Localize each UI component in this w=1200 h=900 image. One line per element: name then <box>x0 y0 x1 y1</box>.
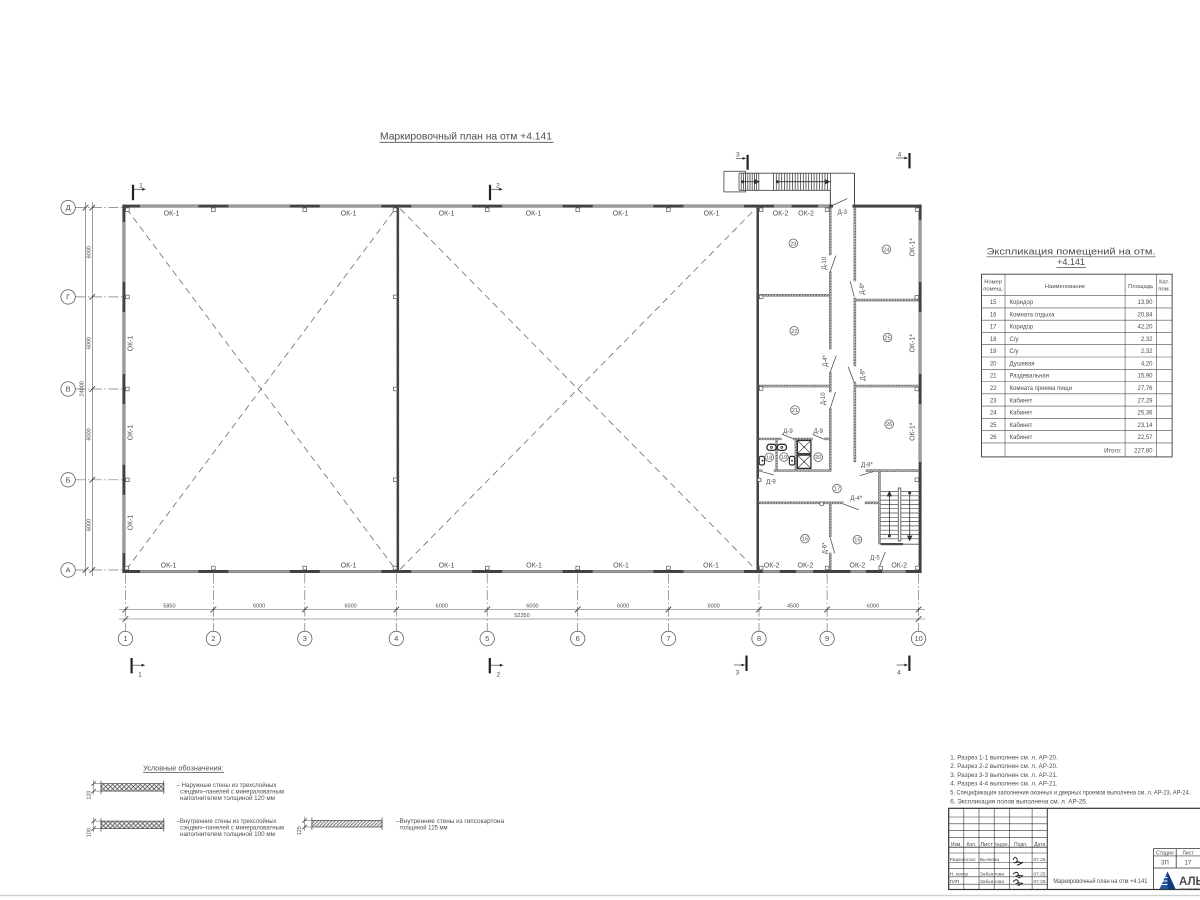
svg-text:2: 2 <box>496 183 500 190</box>
svg-text:С/у: С/у <box>1010 337 1019 343</box>
svg-text:ОК-1*: ОК-1* <box>909 334 916 353</box>
svg-text:Разработал: Разработал <box>950 857 976 863</box>
svg-text:15,90: 15,90 <box>1137 374 1153 380</box>
svg-text:19: 19 <box>990 349 997 355</box>
svg-text:ОК-1*: ОК-1* <box>909 422 916 441</box>
svg-text:42,20: 42,20 <box>1137 325 1153 331</box>
svg-text:24: 24 <box>883 247 889 253</box>
svg-text:23: 23 <box>990 398 997 404</box>
svg-text:6000: 6000 <box>86 519 92 531</box>
svg-text:–Внутренние стены из трехслойн: –Внутренние стены из трехслойных <box>177 818 277 825</box>
svg-text:Наименование: Наименование <box>1045 284 1085 290</box>
svg-text:ОК-1: ОК-1 <box>161 562 177 569</box>
svg-text:Бычкова: Бычкова <box>980 857 999 863</box>
svg-text:26: 26 <box>886 422 892 428</box>
svg-text:ОК-2: ОК-2 <box>850 562 866 569</box>
svg-text:ОК-2: ОК-2 <box>773 211 789 218</box>
svg-text:23: 23 <box>790 241 796 247</box>
svg-text:3: 3 <box>736 669 740 676</box>
svg-text:6000: 6000 <box>344 603 356 609</box>
svg-text:ОК-1: ОК-1 <box>439 211 455 218</box>
svg-text:сэндвич–панелей с минераловатн: сэндвич–панелей с минераловатным <box>180 789 284 796</box>
svg-text:07.25: 07.25 <box>1034 857 1046 863</box>
svg-text:Лист: Лист <box>980 842 994 848</box>
svg-text:22: 22 <box>990 386 997 392</box>
svg-text:21: 21 <box>990 374 997 380</box>
svg-text:Лист: Лист <box>1182 850 1194 856</box>
svg-text:5: 5 <box>485 634 489 643</box>
svg-text:3: 3 <box>736 152 740 159</box>
svg-text:6000: 6000 <box>86 337 92 349</box>
svg-text:227,80: 227,80 <box>1134 449 1153 455</box>
svg-text:ОК-1: ОК-1 <box>526 562 542 569</box>
svg-text:Площадь: Площадь <box>1128 284 1153 290</box>
svg-text:Д-8*: Д-8* <box>861 462 873 468</box>
svg-text:1: 1 <box>138 671 142 678</box>
svg-text:Д-5: Д-5 <box>870 556 880 562</box>
svg-text:ОК-1: ОК-1 <box>613 211 629 218</box>
svg-text:20: 20 <box>815 455 821 461</box>
svg-text:9: 9 <box>825 634 829 643</box>
svg-text:Номер: Номер <box>984 280 1002 286</box>
svg-text:ОК-1: ОК-1 <box>526 211 542 218</box>
svg-text:120: 120 <box>86 791 92 800</box>
svg-text:Д-4*: Д-4* <box>823 354 829 366</box>
svg-text:ЗП: ЗП <box>1161 861 1169 867</box>
svg-text:6: 6 <box>576 634 580 643</box>
svg-text:6000: 6000 <box>253 603 265 609</box>
svg-text:ОК-1: ОК-1 <box>703 562 719 569</box>
svg-text:Д-9: Д-9 <box>814 429 824 435</box>
svg-text:6000: 6000 <box>867 603 879 609</box>
svg-text:7: 7 <box>666 634 670 643</box>
svg-text:наполнителем толщиной 120 мм: наполнителем толщиной 120 мм <box>180 795 275 802</box>
svg-text:Д-8*: Д-8* <box>861 368 867 380</box>
svg-text:ОК-1: ОК-1 <box>341 562 357 569</box>
svg-text:ОК-1: ОК-1 <box>128 336 135 352</box>
svg-text:20,84: 20,84 <box>1137 312 1153 318</box>
svg-text:Раздевальная: Раздевальная <box>1010 374 1050 380</box>
svg-text:Изм.: Изм. <box>951 842 962 848</box>
svg-text:26: 26 <box>990 435 997 441</box>
svg-text:Маркировочный план на отм +4.1: Маркировочный план на отм +4.141 <box>380 132 552 143</box>
svg-text:Душевая: Душевая <box>1010 362 1035 368</box>
svg-text:4500: 4500 <box>787 603 799 609</box>
svg-text:17: 17 <box>990 325 997 331</box>
svg-text:наполнителем толщиной 100 мм: наполнителем толщиной 100 мм <box>180 831 275 838</box>
svg-text:ОК-1: ОК-1 <box>341 211 357 218</box>
svg-text:15: 15 <box>990 300 997 306</box>
svg-text:Н. контр: Н. контр <box>950 871 969 877</box>
svg-text:1: 1 <box>139 183 143 190</box>
svg-text:25: 25 <box>884 336 890 342</box>
svg-text:Д-4*: Д-4* <box>850 496 862 502</box>
svg-text:Кабинет: Кабинет <box>1010 398 1033 404</box>
svg-text:1. Разрез 1-1 выполнен см. л.: 1. Разрез 1-1 выполнен см. л. АР-20. <box>950 754 1058 761</box>
svg-text:Д: Д <box>66 203 71 212</box>
svg-text:ОК-1: ОК-1 <box>704 211 720 218</box>
svg-text:4: 4 <box>897 669 901 676</box>
svg-text:Кабинет: Кабинет <box>1010 411 1033 417</box>
svg-text:Г: Г <box>66 293 70 302</box>
svg-text:4: 4 <box>898 151 902 158</box>
svg-text:Итого:: Итого: <box>1104 449 1122 455</box>
svg-text:ОК-1: ОК-1 <box>164 211 180 218</box>
svg-text:07.25: 07.25 <box>1034 871 1046 877</box>
svg-text:ОК-1: ОК-1 <box>439 562 455 569</box>
svg-text:2,32: 2,32 <box>1141 349 1153 355</box>
svg-text:2: 2 <box>211 634 215 643</box>
svg-text:1: 1 <box>123 634 127 643</box>
svg-text:4,20: 4,20 <box>1141 362 1153 368</box>
svg-text:Комната отдыха: Комната отдыха <box>1010 312 1056 318</box>
svg-text:Дата: Дата <box>1034 842 1045 848</box>
svg-text:Кабинет: Кабинет <box>1010 423 1033 429</box>
svg-text:Д-3: Д-3 <box>838 210 848 216</box>
svg-text:Д-10: Д-10 <box>822 256 828 269</box>
svg-text:52350: 52350 <box>514 613 529 619</box>
svg-text:А: А <box>66 566 71 575</box>
svg-text:сэндвич–панелей с минераловатн: сэндвич–панелей с минераловатным <box>180 825 284 832</box>
svg-text:07.25: 07.25 <box>1034 879 1046 885</box>
svg-text:Забьялова: Забьялова <box>980 871 1004 877</box>
svg-text:8: 8 <box>757 634 761 643</box>
svg-text:4: 4 <box>394 634 398 643</box>
svg-text:строительная комп: строительная комп <box>1179 886 1200 890</box>
svg-text:6000: 6000 <box>708 603 720 609</box>
svg-text:5. Спецификация заполнения око: 5. Спецификация заполнения оконных и две… <box>950 790 1190 797</box>
svg-text:27,29: 27,29 <box>1137 398 1153 404</box>
svg-text:15: 15 <box>854 538 860 544</box>
svg-text:Д-9: Д-9 <box>766 479 776 485</box>
svg-text:Коридор: Коридор <box>1010 300 1034 306</box>
svg-text:Комната приема пищи: Комната приема пищи <box>1010 386 1072 392</box>
svg-text:5850: 5850 <box>163 603 175 609</box>
svg-text:ОК-2: ОК-2 <box>764 562 780 569</box>
svg-text:2: 2 <box>496 671 500 678</box>
svg-text:Б: Б <box>66 475 71 484</box>
svg-text:6000: 6000 <box>436 603 448 609</box>
svg-text:пом.: пом. <box>1158 287 1170 293</box>
svg-text:ОК-1: ОК-1 <box>128 515 135 531</box>
svg-text:2. Разрез 2-2 выполнен см. л.: 2. Разрез 2-2 выполнен см. л. АР-20. <box>950 763 1058 770</box>
svg-text:13,90: 13,90 <box>1137 300 1153 306</box>
svg-text:Условные обозначения:: Условные обозначения: <box>143 765 224 773</box>
svg-text:6000: 6000 <box>86 428 92 440</box>
svg-text:125: 125 <box>297 826 303 835</box>
svg-text:Кабинет: Кабинет <box>1010 435 1033 441</box>
svg-text:22: 22 <box>791 329 797 335</box>
svg-text:24000: 24000 <box>80 381 86 396</box>
svg-text:Маркировочный план на отм +4.1: Маркировочный план на отм +4.141 <box>1053 877 1147 885</box>
svg-text:Кол.: Кол. <box>966 842 976 848</box>
svg-text:23,14: 23,14 <box>1137 423 1153 429</box>
svg-text:–Внутренние стены из гипсокарт: –Внутренние стены из гипсокартона <box>396 819 505 825</box>
svg-text:27,76: 27,76 <box>1137 386 1153 392</box>
svg-text:ОК-2: ОК-2 <box>798 211 814 218</box>
svg-text:Подп.: Подп. <box>1014 842 1027 848</box>
svg-text:№док.: №док. <box>995 842 1009 848</box>
svg-text:помещ.: помещ. <box>983 287 1003 293</box>
svg-text:Кат.: Кат. <box>1159 280 1169 286</box>
svg-text:С/у: С/у <box>1010 349 1019 355</box>
svg-text:3. Разрез 3-3 выполнен см. л.: 3. Разрез 3-3 выполнен см. л. АР-21. <box>950 772 1058 779</box>
svg-text:16: 16 <box>990 312 997 318</box>
svg-text:толщиной 125 мм: толщиной 125 мм <box>400 825 448 832</box>
svg-text:6000: 6000 <box>86 246 92 258</box>
svg-text:18: 18 <box>766 455 772 461</box>
svg-text:Экспликация помещений на отм.: Экспликация помещений на отм. <box>987 246 1156 256</box>
svg-text:6000: 6000 <box>526 603 538 609</box>
svg-text:Д-9: Д-9 <box>783 429 793 435</box>
svg-text:17: 17 <box>834 487 840 493</box>
svg-text:2,32: 2,32 <box>1141 337 1153 343</box>
svg-text:ОК-1: ОК-1 <box>128 425 135 441</box>
svg-text:Д-8*: Д-8* <box>860 282 866 294</box>
svg-text:17: 17 <box>1185 861 1192 867</box>
svg-text:+4.141: +4.141 <box>1057 257 1085 267</box>
svg-text:19: 19 <box>781 455 787 461</box>
svg-text:ОК-1: ОК-1 <box>613 562 629 569</box>
svg-text:В: В <box>66 385 71 394</box>
svg-text:4. Разрез 4-4 выполнен см. л.: 4. Разрез 4-4 выполнен см. л. АР-21. <box>950 781 1058 788</box>
svg-text:24: 24 <box>990 411 997 417</box>
svg-text:21: 21 <box>792 408 798 414</box>
svg-text:25,36: 25,36 <box>1137 411 1153 417</box>
svg-text:Забьялова: Забьялова <box>980 879 1004 885</box>
svg-text:Стадия: Стадия <box>1156 850 1174 856</box>
svg-text:20: 20 <box>990 362 997 368</box>
svg-text:Д-6*: Д-6* <box>822 542 828 554</box>
svg-text:6000: 6000 <box>617 603 629 609</box>
svg-text:18: 18 <box>990 337 997 343</box>
svg-text:ГИП: ГИП <box>950 879 960 885</box>
svg-text:10: 10 <box>914 634 922 643</box>
svg-text:Д-10: Д-10 <box>821 392 827 405</box>
svg-text:Коридор: Коридор <box>1010 325 1034 331</box>
svg-text:6. Экспликация полов выполнена: 6. Экспликация полов выполнена см. л. АР… <box>950 798 1088 805</box>
svg-text:– Наружные стены из трехслойны: – Наружные стены из трехслойных <box>177 782 277 789</box>
svg-text:100: 100 <box>86 828 92 837</box>
svg-text:ОК-2: ОК-2 <box>891 562 907 569</box>
svg-text:22,57: 22,57 <box>1137 435 1153 441</box>
svg-text:16: 16 <box>802 537 808 543</box>
svg-text:3: 3 <box>303 634 307 643</box>
svg-text:25: 25 <box>990 423 997 429</box>
svg-text:ОК-2: ОК-2 <box>798 562 814 569</box>
svg-text:ОК-1*: ОК-1* <box>909 238 916 257</box>
